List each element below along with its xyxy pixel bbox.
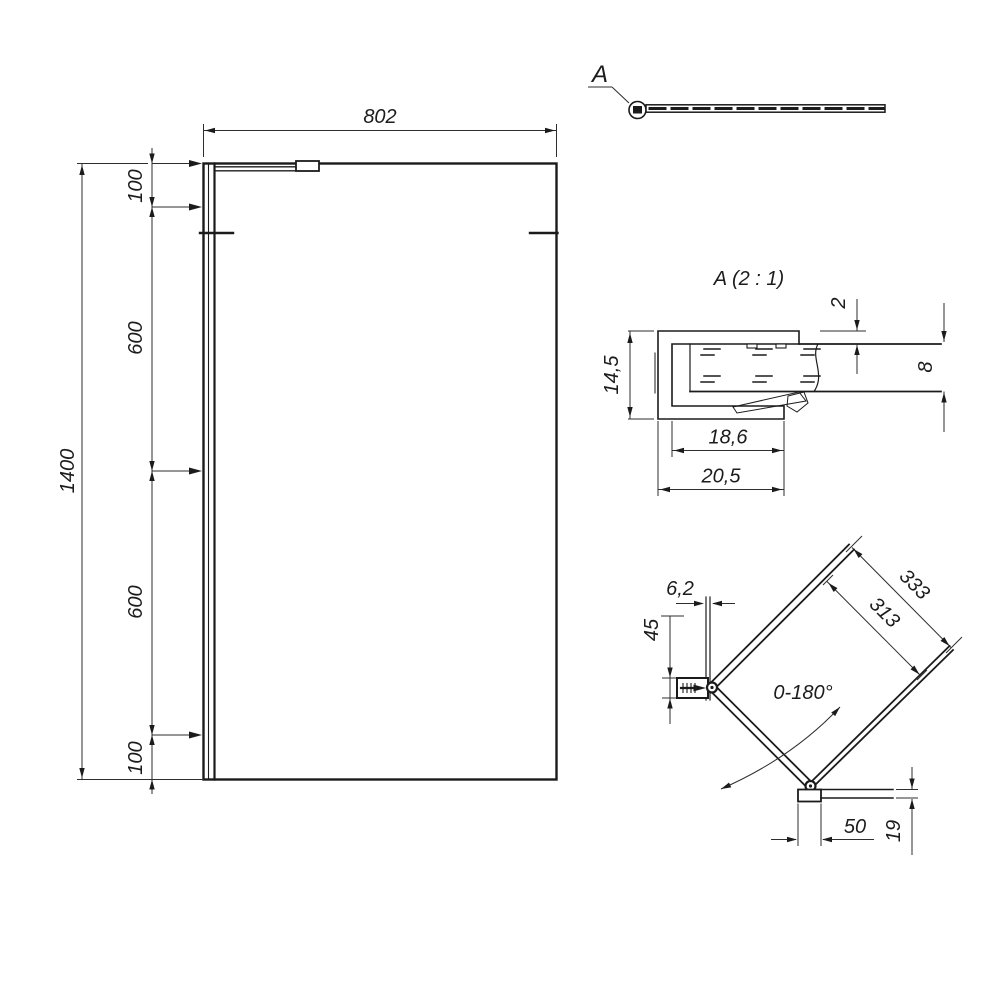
support-arm-view: 6,2 45 333 [641, 536, 962, 855]
dim-inner-length: 313 [865, 593, 904, 632]
drawing-canvas: 802 1400 100 600 600 100 A [0, 0, 1000, 1000]
dim-segment-100-top: 100 [125, 169, 147, 202]
dim-bracket-height: 45 [641, 618, 663, 641]
dim-outer-depth: 20,5 [701, 466, 742, 488]
hinge-pivot-2-dot [809, 784, 812, 787]
front-view-dimensions: 802 1400 100 600 600 100 [57, 106, 557, 794]
glass-panel-outline [204, 164, 557, 780]
clamp-wedge [733, 392, 806, 413]
dim-bracket-width: 50 [844, 816, 866, 838]
dim-outer-length: 333 [895, 565, 934, 604]
engineering-drawing-sheet: 802 1400 100 600 600 100 A [0, 0, 1000, 1000]
glass-break-line [814, 344, 819, 392]
detail-a-view: A (2 : 1) 14,5 2 [601, 268, 947, 496]
dim-inner-depth: 18,6 [709, 427, 749, 449]
dim-width-802: 802 [363, 106, 396, 128]
top-bar-connector-block [296, 161, 319, 171]
dim-profile-height: 14,5 [601, 355, 623, 395]
profile-end-section [633, 106, 642, 114]
detail-a-title: A (2 : 1) [713, 268, 784, 290]
dim-glass-thickness: 8 [915, 361, 937, 372]
glass-hatch-marks [701, 349, 820, 382]
dim-bar-width: 19 [883, 820, 905, 842]
hinge-pivot-1-dot [710, 686, 713, 689]
dim-swivel-range: 0-180° [773, 682, 832, 704]
bottom-bracket-block [798, 790, 821, 802]
front-view [200, 161, 558, 780]
detail-callout-label: A [590, 61, 608, 88]
dim-glass-gap: 6,2 [666, 578, 694, 600]
callout-leader-line [612, 87, 629, 103]
dim-segment-600-lower: 600 [125, 585, 147, 618]
dim-segment-100-bottom: 100 [125, 741, 147, 774]
seal-notch-2 [776, 344, 786, 348]
top-view: A [588, 61, 885, 119]
dim-height-1400: 1400 [57, 449, 79, 494]
seal-notch-1 [747, 344, 757, 348]
dim-flange-thickness: 2 [828, 297, 850, 309]
dim-segment-600-upper: 600 [125, 321, 147, 354]
